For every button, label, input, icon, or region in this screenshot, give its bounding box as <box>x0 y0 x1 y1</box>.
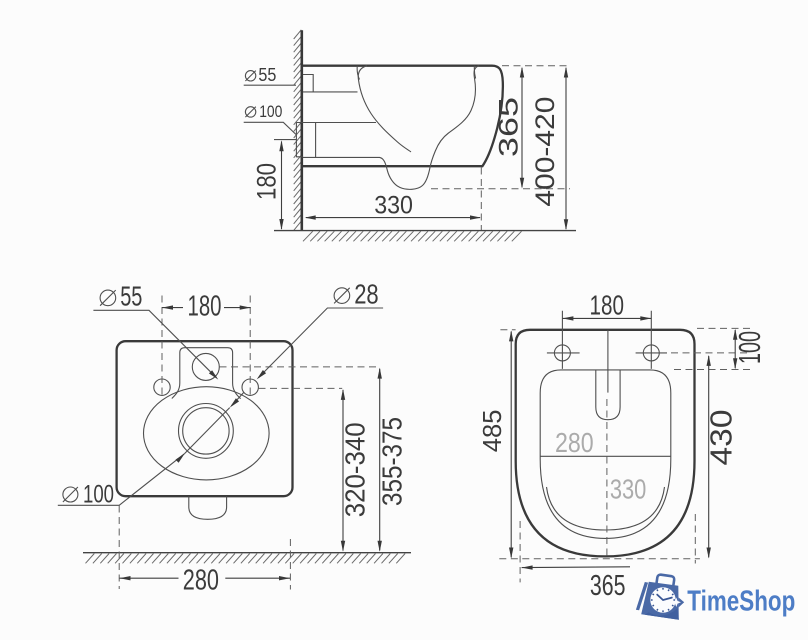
svg-text:55: 55 <box>120 281 142 312</box>
svg-text:330: 330 <box>610 474 647 505</box>
svg-text:365: 365 <box>590 570 626 602</box>
svg-text:180: 180 <box>188 291 222 323</box>
svg-text:485: 485 <box>477 410 507 453</box>
svg-text:400-420: 400-420 <box>530 97 560 207</box>
svg-text:355-375: 355-375 <box>376 417 407 506</box>
svg-text:180: 180 <box>252 163 282 200</box>
svg-text:320-340: 320-340 <box>339 422 370 517</box>
svg-text:430: 430 <box>703 410 738 466</box>
svg-text:330: 330 <box>374 191 413 219</box>
svg-text:100: 100 <box>83 481 114 509</box>
svg-text:280: 280 <box>183 565 219 597</box>
svg-text:100: 100 <box>259 102 282 121</box>
svg-text:180: 180 <box>590 290 625 321</box>
svg-text:55: 55 <box>258 65 276 85</box>
svg-text:280: 280 <box>555 427 594 458</box>
svg-text:365: 365 <box>493 97 523 157</box>
svg-text:TimeShop: TimeShop <box>687 586 795 618</box>
svg-text:100: 100 <box>732 331 767 364</box>
svg-text:28: 28 <box>354 278 379 309</box>
